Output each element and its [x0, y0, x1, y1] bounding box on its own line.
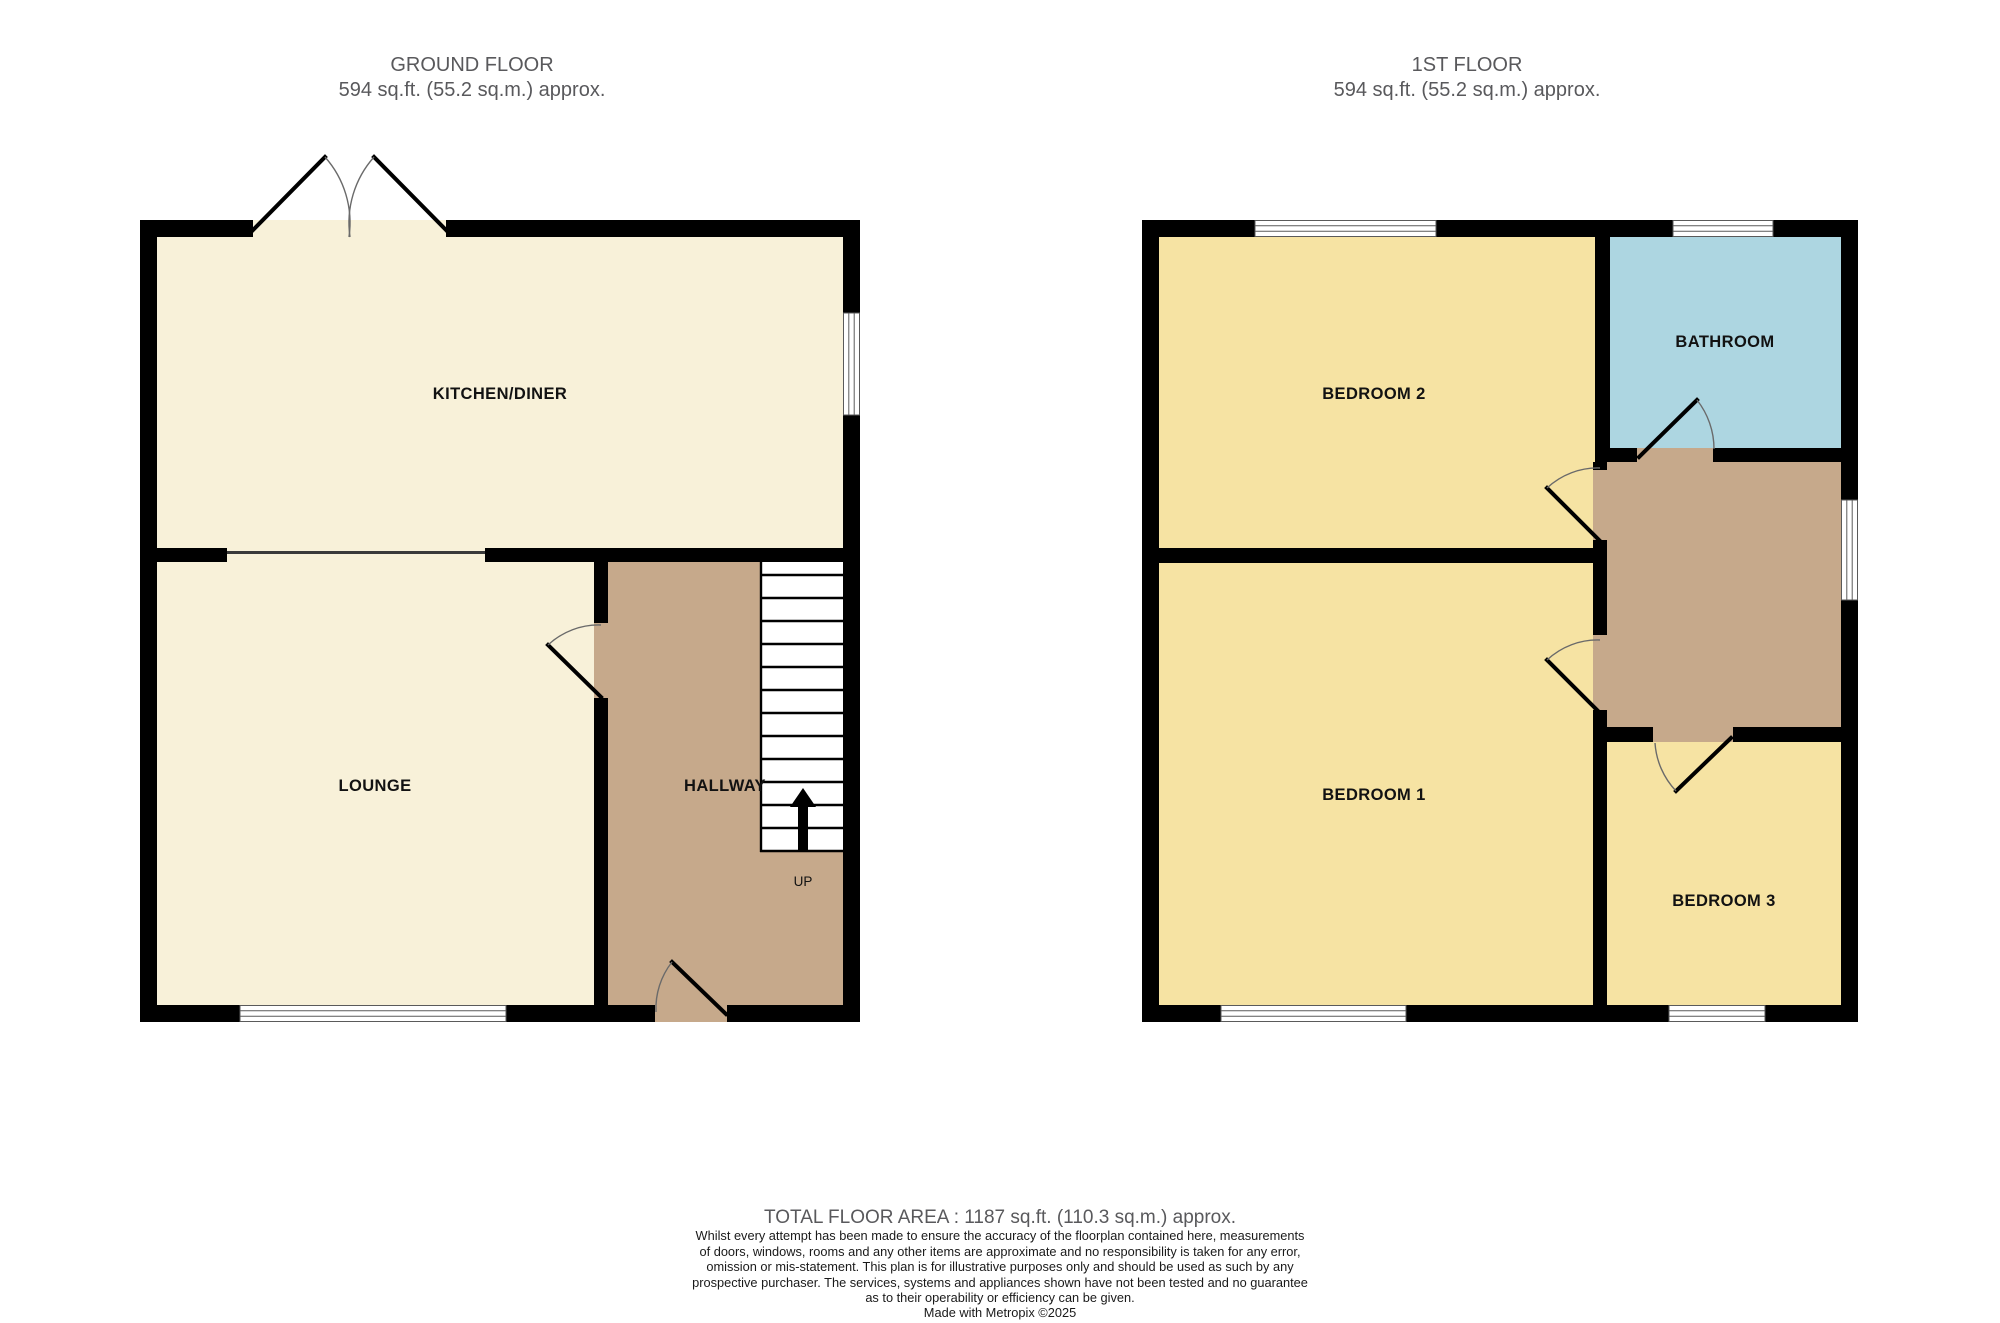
- disclaimer-line: as to their operability or efficiency ca…: [865, 1290, 1134, 1305]
- ground-floor-plan: KITCHEN/DINER LOUNGE HALLWAY UP: [140, 157, 860, 1022]
- disclaimer-line: prospective purchaser. The services, sys…: [692, 1275, 1308, 1290]
- first-floor-title: 1ST FLOOR: [1412, 54, 1523, 76]
- wall: [1142, 1005, 1221, 1022]
- bedroom3-window: [1669, 1006, 1765, 1022]
- bedroom2-window: [1255, 221, 1436, 237]
- wall: [485, 548, 843, 562]
- wall: [1595, 237, 1610, 462]
- wall: [1765, 1005, 1858, 1022]
- footer: TOTAL FLOOR AREA : 1187 sq.ft. (110.3 sq…: [692, 1207, 1308, 1320]
- bedroom1-label: BEDROOM 1: [1322, 786, 1426, 804]
- hallway-label: HALLWAY: [684, 777, 766, 795]
- metropix-credit: Made with Metropix ©2025: [924, 1305, 1076, 1320]
- bedroom3-door-opening: [1653, 727, 1733, 742]
- wall: [506, 1005, 655, 1022]
- wall: [1436, 220, 1673, 237]
- bedroom2-label: BEDROOM 2: [1322, 385, 1426, 403]
- front-door-opening: [655, 1005, 727, 1022]
- wall: [1595, 448, 1637, 462]
- lounge-label: LOUNGE: [339, 777, 412, 795]
- wall: [1159, 548, 1605, 563]
- open-plan-divider-line: [227, 551, 485, 554]
- disclaimer-line: of doors, windows, rooms and any other i…: [699, 1244, 1300, 1259]
- wall: [1142, 220, 1255, 237]
- wall: [1593, 462, 1607, 470]
- wall: [1733, 727, 1858, 742]
- wall: [446, 220, 860, 237]
- floorplan-canvas: GROUND FLOOR 594 sq.ft. (55.2 sq.m.) app…: [0, 0, 2000, 1323]
- wall: [1713, 448, 1858, 462]
- bedroom1-door-opening: [1593, 635, 1607, 710]
- wall: [140, 1005, 240, 1022]
- ground-floor-title: GROUND FLOOR: [390, 54, 553, 76]
- wall: [140, 548, 227, 562]
- wall: [1841, 600, 1858, 1022]
- wall: [1406, 1005, 1669, 1022]
- lounge-door-opening: [594, 623, 608, 698]
- lounge-window: [240, 1006, 506, 1022]
- landing-floor: [1605, 462, 1841, 727]
- up-label: UP: [794, 874, 813, 889]
- bedroom1-window: [1221, 1006, 1406, 1022]
- wall: [1593, 540, 1607, 635]
- wall: [1593, 710, 1607, 1005]
- disclaimer-line: Whilst every attempt has been made to en…: [696, 1228, 1305, 1243]
- wall: [594, 548, 608, 623]
- wall: [843, 220, 860, 313]
- wall: [727, 1005, 860, 1022]
- staircase: [760, 562, 843, 852]
- first-floor-plan: BEDROOM 2 BATHROOM BEDROOM 1 BEDROOM 3: [1142, 220, 1858, 1022]
- first-floor-area: 594 sq.ft. (55.2 sq.m.) approx.: [1334, 79, 1601, 101]
- wall: [1142, 220, 1159, 1022]
- disclaimer-line: omission or mis-statement. This plan is …: [706, 1259, 1294, 1274]
- kitchen-diner-label: KITCHEN/DINER: [433, 385, 567, 403]
- bedroom3-label: BEDROOM 3: [1672, 892, 1776, 910]
- ground-floor-area: 594 sq.ft. (55.2 sq.m.) approx.: [339, 79, 606, 101]
- wall: [140, 220, 157, 1022]
- bathroom-window: [1673, 221, 1773, 237]
- kitchen-window: [844, 313, 860, 415]
- wall: [594, 698, 608, 1005]
- wall: [140, 220, 253, 237]
- landing-window: [1842, 500, 1858, 600]
- bedroom2-door-opening: [1593, 470, 1607, 540]
- wall: [843, 415, 860, 1022]
- floorplan-drawing: GROUND FLOOR 594 sq.ft. (55.2 sq.m.) app…: [0, 0, 2000, 1323]
- total-floor-area: TOTAL FLOOR AREA : 1187 sq.ft. (110.3 sq…: [764, 1207, 1236, 1228]
- wall: [1593, 727, 1653, 742]
- bathroom-label: BATHROOM: [1675, 333, 1774, 351]
